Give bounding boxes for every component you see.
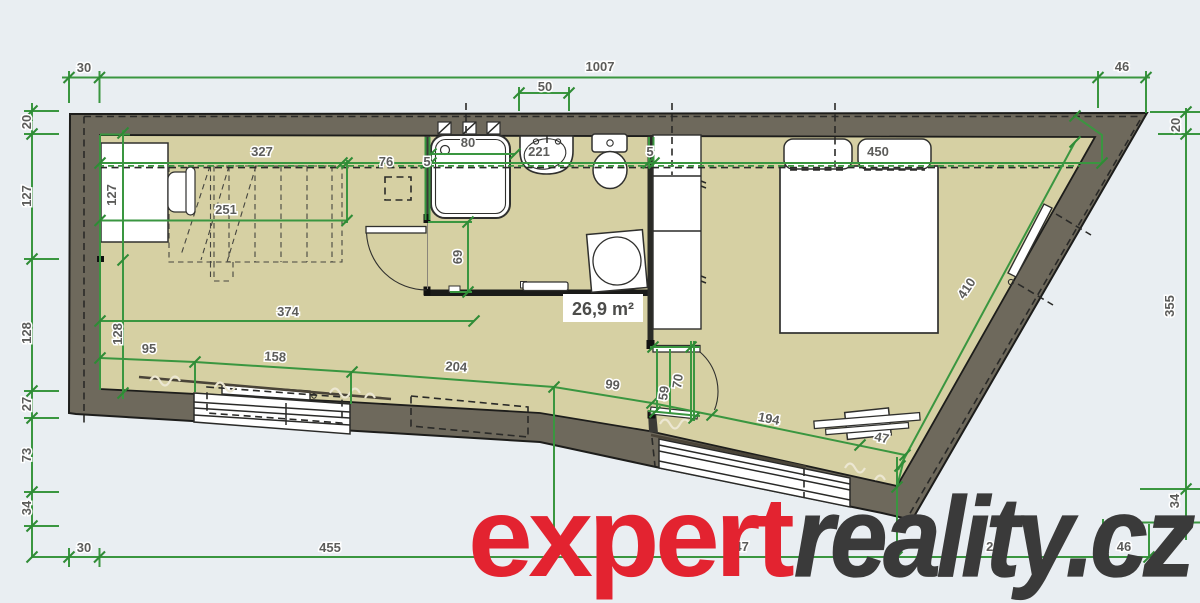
svg-text:80: 80 (461, 135, 475, 150)
svg-text:99: 99 (604, 376, 620, 393)
svg-text:1007: 1007 (586, 59, 615, 74)
svg-text:47: 47 (873, 429, 890, 446)
svg-text:70: 70 (669, 373, 686, 389)
svg-text:455: 455 (319, 540, 341, 555)
svg-text:158: 158 (264, 348, 286, 364)
svg-text:127: 127 (104, 184, 119, 206)
svg-text:reality.cz: reality.cz (794, 473, 1195, 600)
svg-text:5: 5 (423, 154, 430, 169)
svg-text:251: 251 (215, 202, 237, 217)
svg-text:450: 450 (867, 144, 889, 159)
svg-text:73: 73 (19, 448, 34, 462)
svg-text:46: 46 (1115, 59, 1129, 74)
svg-text:95: 95 (142, 341, 156, 356)
svg-text:26,9 m²: 26,9 m² (572, 299, 634, 319)
svg-text:30: 30 (77, 540, 91, 555)
svg-text:221: 221 (528, 144, 550, 159)
svg-text:27: 27 (19, 397, 34, 411)
svg-text:34: 34 (19, 500, 34, 515)
svg-text:355: 355 (1162, 295, 1177, 317)
svg-text:20: 20 (19, 115, 34, 129)
svg-text:76: 76 (379, 154, 393, 169)
svg-text:50: 50 (538, 79, 552, 94)
svg-text:30: 30 (77, 60, 91, 75)
svg-text:expert: expert (468, 474, 793, 600)
svg-text:128: 128 (19, 322, 34, 344)
svg-text:69: 69 (450, 250, 465, 264)
svg-text:374: 374 (277, 304, 299, 319)
svg-text:127: 127 (19, 185, 34, 207)
svg-text:327: 327 (251, 144, 273, 159)
svg-text:5: 5 (646, 144, 653, 159)
svg-text:204: 204 (445, 358, 468, 375)
svg-text:20: 20 (1168, 118, 1183, 132)
svg-text:128: 128 (110, 323, 125, 345)
